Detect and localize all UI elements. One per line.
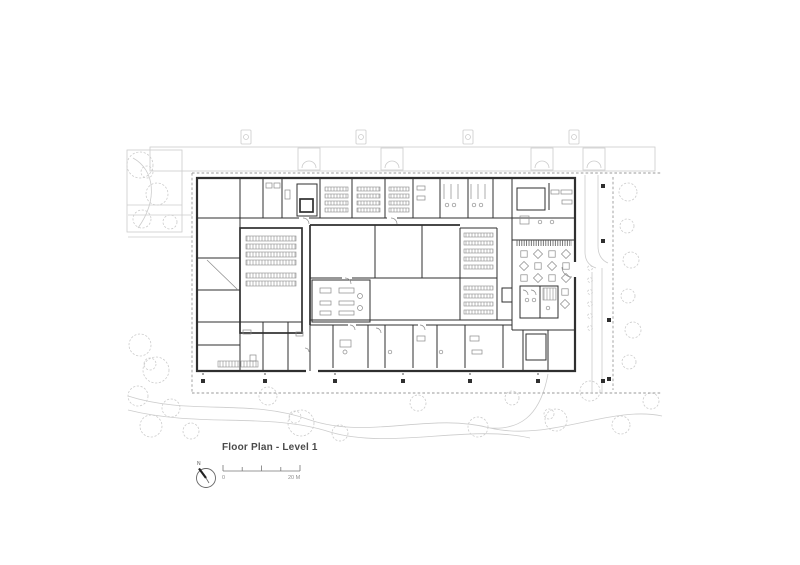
scale-bar xyxy=(223,465,300,471)
floor-plan-drawing: N xyxy=(0,0,800,565)
north-arrow: N xyxy=(197,461,216,488)
servery-counter xyxy=(516,240,572,246)
scale-start-label: 0 xyxy=(222,475,225,481)
scale-end-label: 20 M xyxy=(288,475,300,481)
parking-bay xyxy=(298,148,605,170)
storage-shelf xyxy=(218,361,258,367)
path-right xyxy=(585,175,608,392)
light-posts xyxy=(241,130,579,144)
landscape-paths xyxy=(128,374,662,439)
adjacent-building xyxy=(127,150,192,237)
floor-plan-sheet: N Floor Plan - Level 1 0 20 M xyxy=(0,0,800,565)
parking-strip xyxy=(150,130,655,171)
north-needle xyxy=(199,469,206,479)
north-label: N xyxy=(197,461,201,467)
plan-title: Floor Plan - Level 1 xyxy=(222,442,318,453)
building xyxy=(197,178,579,374)
